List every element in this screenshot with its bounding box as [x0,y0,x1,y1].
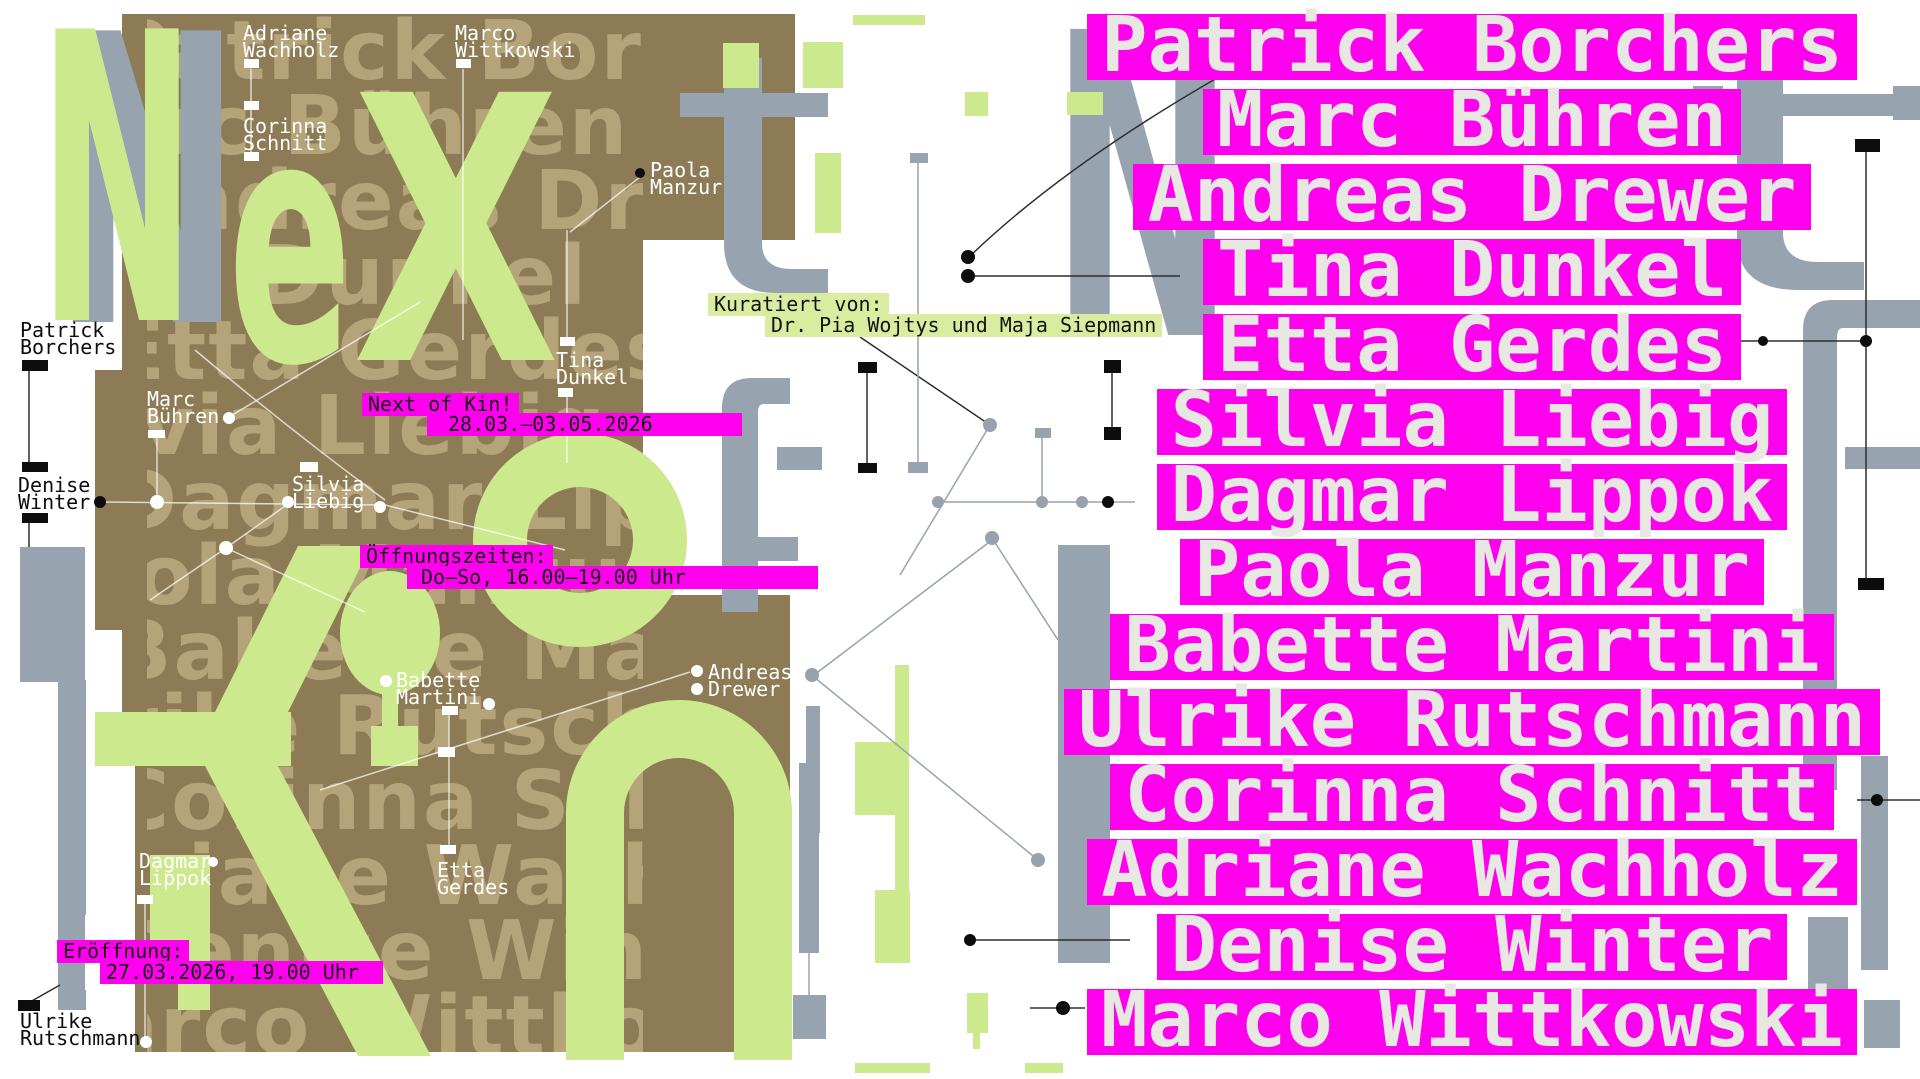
hours-value: Do–So, 16.00–19.00 Uhr [407,566,818,589]
artist-row: Etta Gerdes [1203,314,1741,380]
artist-row: Babette Martini [1110,614,1833,680]
label-silvia-liebig: SilviaLiebig [292,476,364,510]
label-marc-buehren: MarcBühren [147,391,219,425]
label-patrick-borchers: PatrickBorchers [20,322,116,356]
artist-row: Marco Wittkowski [1087,989,1857,1055]
label-andreas-drewer: AndreasDrewer [708,664,792,698]
label-paola-manzur: PaolaManzur [650,162,722,196]
label-tina-dunkel: TinaDunkel [556,352,628,386]
label-corinna-schnitt: CorinnaSchnitt [243,118,327,152]
artist-row: Adriane Wachholz [1087,839,1857,905]
artist-row: Silvia Liebig [1157,389,1788,455]
letter-x-green: X [352,18,560,447]
artist-row: Andreas Drewer [1133,164,1810,230]
letter-n2-green [566,700,792,1060]
exhibition-dates: 28.03.–03.05.2026 [427,413,742,436]
artist-rows: Patrick BorchersMarc BührenAndreas Drewe… [1012,14,1920,1064]
label-denise-winter: DeniseWinter [18,477,90,511]
label-etta-gerdes: EttaGerdes [437,862,509,896]
label-marco-wittkowski: MarcoWittkowski [455,25,575,59]
label-babette-martini: BabetteMartini [396,672,480,706]
artist-row: Corinna Schnitt [1110,764,1833,830]
artist-row: Paola Manzur [1180,539,1764,605]
artist-row: Patrick Borchers [1087,14,1857,80]
poster-canvas: Patrick BorchersMarc BührenAndreas Drewe… [0,0,1920,1079]
opening-value: 27.03.2026, 19.00 Uhr [100,961,383,984]
label-adriane-wachholz: AdrianeWachholz [243,25,339,59]
label-ulrike-rutschmann: UlrikeRutschmann [20,1013,140,1047]
artist-row: Dagmar Lippok [1157,464,1788,530]
artist-row: Ulrike Rutschmann [1064,689,1880,755]
label-dagmar-lippok: DagmarLippok [139,853,211,887]
artist-row: Tina Dunkel [1203,239,1741,305]
artist-row: Marc Bühren [1203,89,1741,155]
artist-row: Denise Winter [1157,914,1788,980]
